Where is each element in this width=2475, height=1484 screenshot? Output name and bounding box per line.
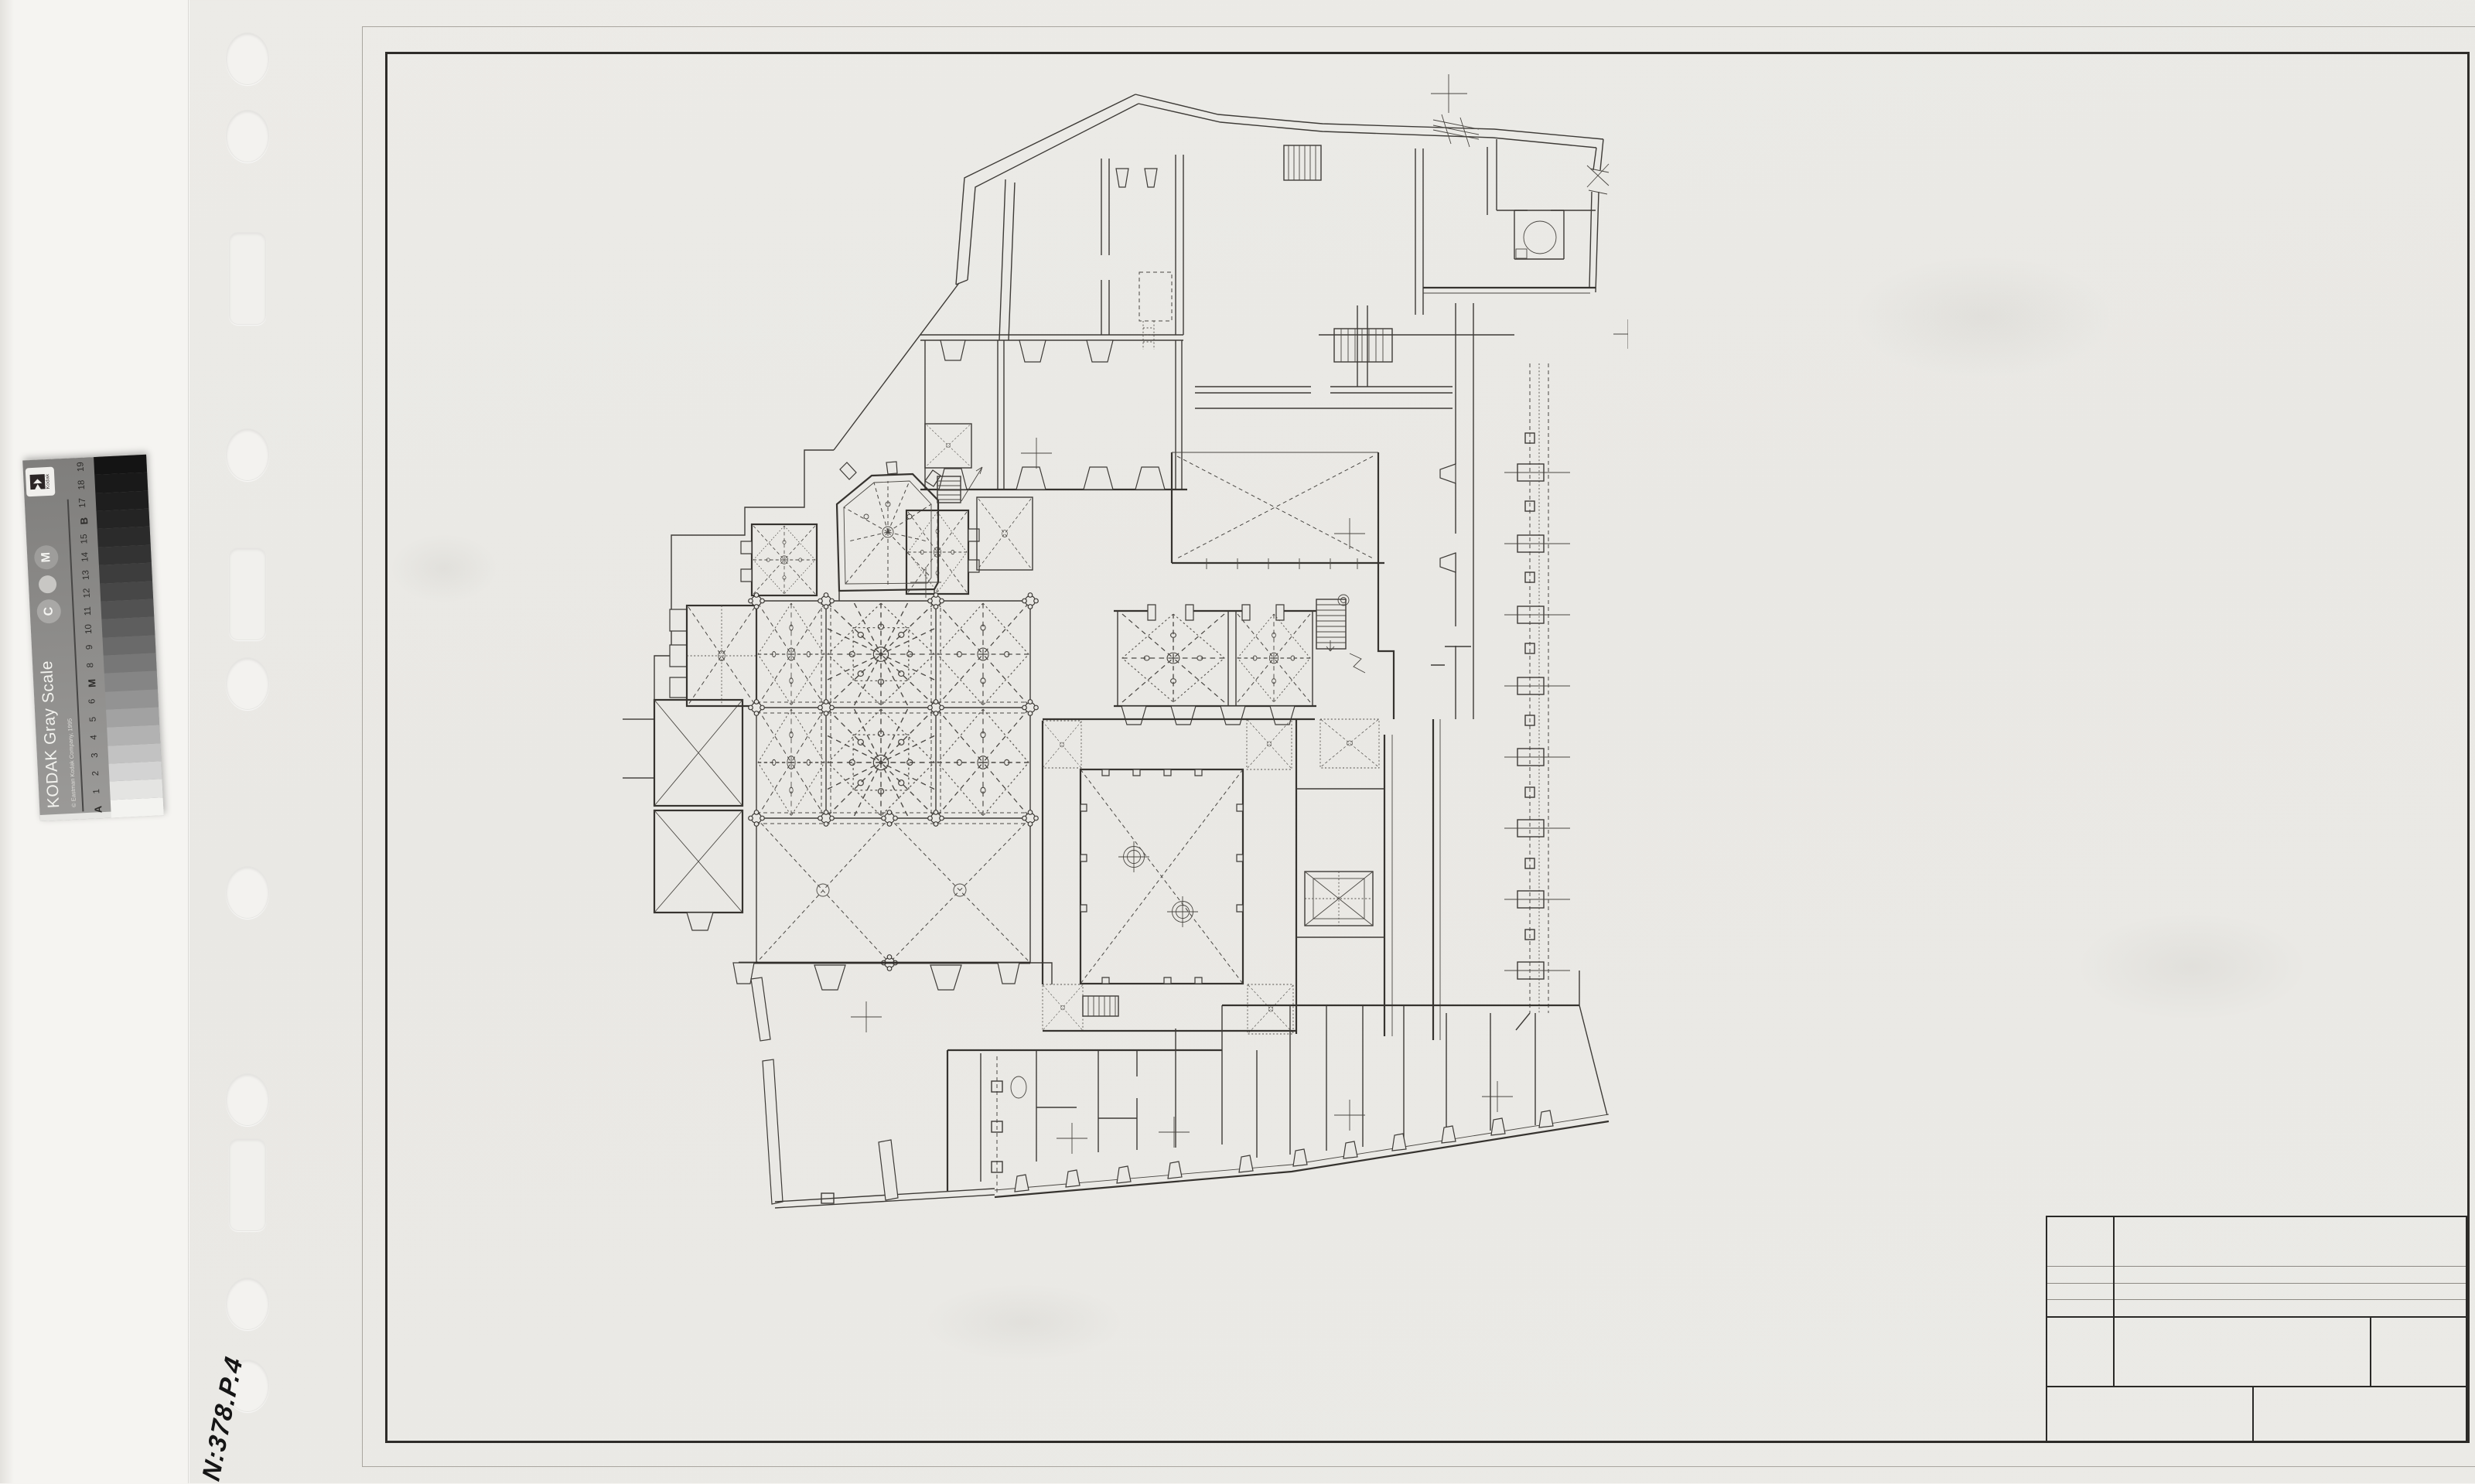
title-block — [2046, 1216, 2467, 1443]
gray-step-swatch — [106, 707, 159, 728]
binder-hole — [226, 32, 269, 85]
gray-step-2: 2 — [83, 761, 162, 783]
binder-hole — [226, 1278, 269, 1330]
gray-step-label: B — [70, 511, 97, 530]
gray-step-12: 12 — [73, 581, 153, 602]
gray-step-M: M — [78, 671, 158, 693]
survey-tick-marks — [851, 74, 1628, 1032]
gray-step-label: 5 — [80, 710, 107, 729]
title-block-rule — [2113, 1217, 2115, 1386]
gray-step-swatch — [102, 635, 155, 656]
gray-step-label: 4 — [80, 728, 108, 747]
gray-step-swatch — [105, 689, 159, 710]
control-circle-c: C — [36, 599, 61, 623]
gray-step-label: 9 — [77, 637, 104, 657]
gray-step-label: 14 — [72, 548, 99, 567]
binder-hole — [226, 110, 269, 162]
kodak-k-icon — [29, 472, 46, 491]
gray-step-swatch — [110, 780, 163, 800]
gray-step-swatch — [99, 563, 152, 584]
binder-hole — [226, 657, 269, 710]
kodak-logo-text: Kodak — [45, 473, 51, 489]
gray-step-label: 3 — [81, 745, 108, 765]
church — [623, 424, 1052, 990]
hole-reinforcement — [229, 232, 266, 325]
gray-step-label: 8 — [77, 656, 104, 675]
gray-step-swatch — [101, 599, 154, 619]
gray-step-label: 18 — [68, 476, 95, 495]
kodak-logo: Kodak — [26, 467, 56, 497]
gray-step-label: A — [84, 800, 111, 819]
gray-step-swatch — [97, 509, 150, 530]
northeast-room — [1172, 452, 1471, 719]
gray-step-label: 6 — [79, 691, 106, 711]
gray-step-1: 1 — [84, 780, 163, 801]
gray-step-6: 6 — [79, 689, 159, 711]
gray-step-swatch — [100, 581, 153, 602]
gray-scale-steps: A123456M89101112131415B171819 — [67, 455, 164, 819]
gray-step-swatch — [97, 527, 151, 548]
gray-step-5: 5 — [80, 707, 159, 728]
strip-title: KODAK Gray Scale — [38, 660, 63, 808]
gray-step-19: 19 — [67, 455, 147, 476]
gray-step-swatch — [107, 725, 160, 746]
gray-step-14: 14 — [72, 544, 152, 566]
gray-step-swatch — [95, 490, 148, 511]
site-boundary-walls — [654, 94, 1609, 700]
gray-step-17: 17 — [69, 490, 148, 512]
gray-step-10: 10 — [75, 617, 155, 639]
binder-hole — [226, 428, 269, 481]
gray-step-swatch — [94, 472, 148, 493]
gray-step-label: 19 — [67, 457, 94, 476]
gray-step-label: 2 — [83, 764, 110, 783]
gray-step-label: 15 — [71, 529, 98, 548]
gray-step-swatch — [94, 455, 147, 476]
east-range — [1296, 303, 1570, 1040]
title-block-rule — [2047, 1266, 2466, 1267]
scan-of-architectural-plan: { "scan": { "colors": { "backing_paper":… — [0, 0, 2475, 1483]
title-block-rule — [2047, 1316, 2466, 1318]
south-range-and-street — [751, 971, 1609, 1208]
gray-step-B: B — [70, 509, 150, 530]
east-chapels — [1114, 595, 1365, 725]
gray-step-8: 8 — [77, 653, 157, 674]
gray-step-9: 9 — [77, 635, 156, 657]
gray-step-3: 3 — [81, 743, 161, 765]
title-block-rule — [2252, 1386, 2254, 1441]
gray-step-swatch — [104, 653, 157, 674]
control-circle-blank — [38, 575, 56, 594]
gray-step-label: 11 — [74, 602, 101, 621]
gray-step-15: 15 — [71, 527, 151, 548]
gray-step-swatch — [111, 797, 164, 818]
scan-edge-shadow — [0, 0, 14, 1483]
cloister — [1043, 719, 1379, 1034]
gray-step-swatch — [98, 544, 152, 565]
gray-step-11: 11 — [74, 599, 154, 620]
title-block-rule — [2047, 1386, 2466, 1387]
control-circle-m: M — [34, 544, 59, 569]
gray-step-swatch — [104, 671, 158, 692]
gray-step-18: 18 — [68, 472, 148, 494]
gray-step-swatch — [108, 761, 162, 782]
binder-hole — [226, 1073, 269, 1126]
control-circle-label: C — [42, 606, 56, 616]
gray-step-A: A — [84, 797, 164, 819]
gray-step-label: 10 — [75, 619, 102, 639]
north-range-rooms — [920, 114, 1609, 408]
gray-step-label: 13 — [73, 565, 100, 585]
hole-reinforcement — [229, 1138, 266, 1231]
binder-hole — [226, 866, 269, 919]
gray-step-4: 4 — [80, 725, 160, 747]
title-block-rule — [2047, 1283, 2466, 1284]
floor-plan-drawing — [623, 66, 1628, 1226]
gray-step-label: 17 — [69, 493, 96, 513]
control-circle-label: M — [39, 552, 54, 563]
title-block-rule — [2370, 1316, 2371, 1386]
gray-step-label: 1 — [84, 782, 111, 801]
kodak-gray-scale-strip: KODAK Gray Scale © Eastman Kodak Company… — [22, 455, 164, 821]
hole-reinforcement — [229, 548, 266, 640]
gray-step-label: 12 — [73, 583, 101, 602]
gray-step-swatch — [101, 617, 155, 638]
title-block-rule — [2047, 1299, 2466, 1300]
gray-step-label: M — [78, 674, 105, 693]
gray-step-13: 13 — [73, 563, 152, 585]
gray-step-swatch — [108, 743, 161, 764]
strip-copyright: © Eastman Kodak Company, 1995 — [67, 718, 78, 807]
